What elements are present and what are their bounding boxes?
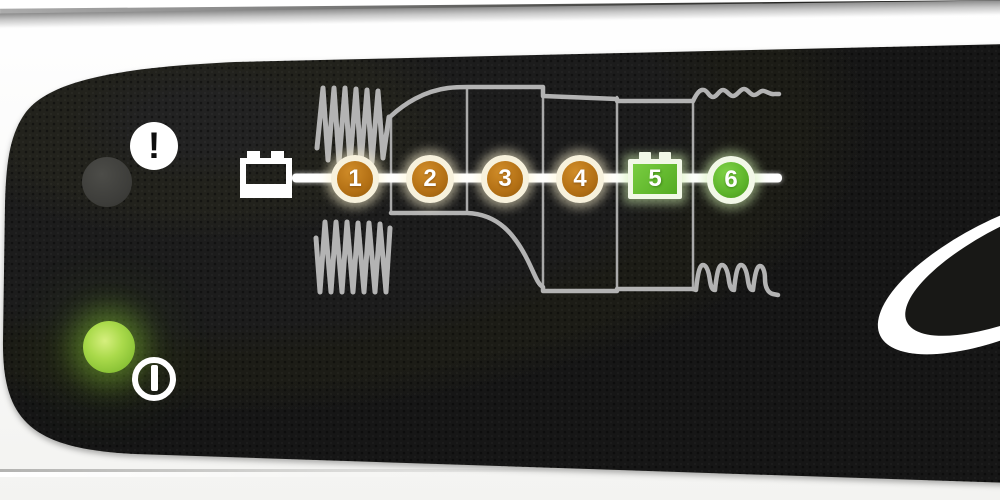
stage-label-4: 4	[573, 165, 586, 193]
warning-icon: !	[130, 122, 178, 170]
power-led	[83, 321, 135, 373]
charge-stage-diagram	[0, 0, 1000, 500]
warning-led	[82, 157, 132, 207]
battery-post-right	[659, 152, 671, 160]
stage-badge-1: 1	[331, 155, 379, 203]
stage-badge-6: 6	[707, 156, 755, 204]
stage-label-1: 1	[348, 165, 361, 193]
stage-badge-2: 2	[406, 155, 454, 203]
power-icon	[132, 357, 176, 401]
warning-symbol: !	[148, 127, 160, 164]
panel-leather-texture	[3, 44, 1000, 483]
battery-post-left	[639, 152, 651, 160]
stage-badge-4: 4	[556, 155, 604, 203]
power-icon-bar	[151, 365, 158, 391]
stage-label-6: 6	[724, 166, 737, 194]
stage-label-2: 2	[423, 165, 436, 193]
stage-badge-3: 3	[481, 155, 529, 203]
stage-label-3: 3	[498, 165, 511, 193]
stage-badge-5-battery: 5	[628, 159, 682, 199]
battery-charger-photo: ! 1 2 3 4 5 6	[0, 0, 1000, 500]
stage-label-5: 5	[648, 165, 661, 193]
